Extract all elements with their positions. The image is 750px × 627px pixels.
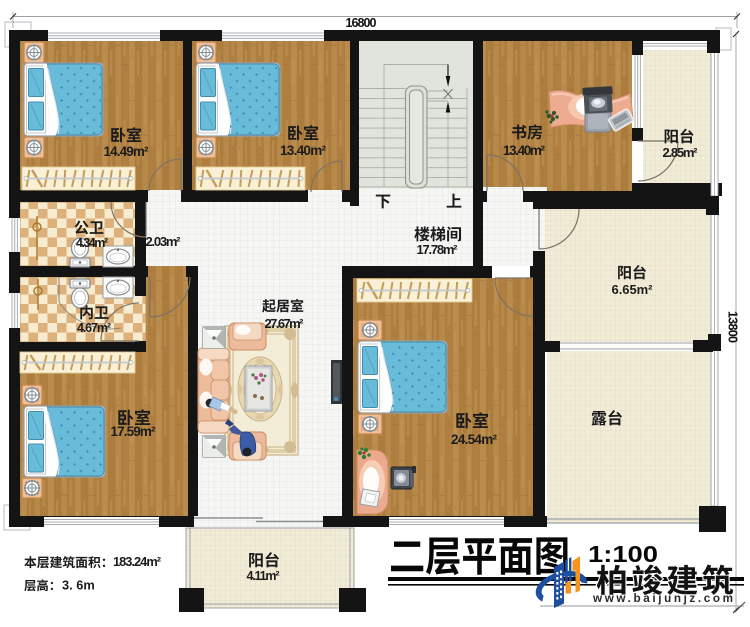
svg-text:17.59m²: 17.59m² [111,424,157,439]
svg-text:13.40m²: 13.40m² [503,143,546,158]
svg-text:24.54m²: 24.54m² [451,432,498,447]
svg-text:4.67m²: 4.67m² [77,321,111,335]
svg-text:14.49m²: 14.49m² [104,144,150,159]
svg-text:4.34m²: 4.34m² [76,236,108,250]
svg-text:13800: 13800 [726,311,740,343]
svg-text:13.40m²: 13.40m² [280,143,327,158]
svg-text:16800: 16800 [346,16,377,30]
svg-text:2.03m²: 2.03m² [146,234,182,249]
svg-text:27.67m²: 27.67m² [265,316,305,331]
svg-text:183.24m²: 183.24m² [113,554,161,569]
svg-text:1:100: 1:100 [588,541,658,567]
svg-text:3. 6m: 3. 6m [62,578,95,593]
svg-text:17.78m²: 17.78m² [417,242,459,257]
svg-text:6.65m²: 6.65m² [612,282,654,297]
svg-text:2.85m²: 2.85m² [663,145,699,160]
svg-text:4.11m²: 4.11m² [247,569,280,583]
